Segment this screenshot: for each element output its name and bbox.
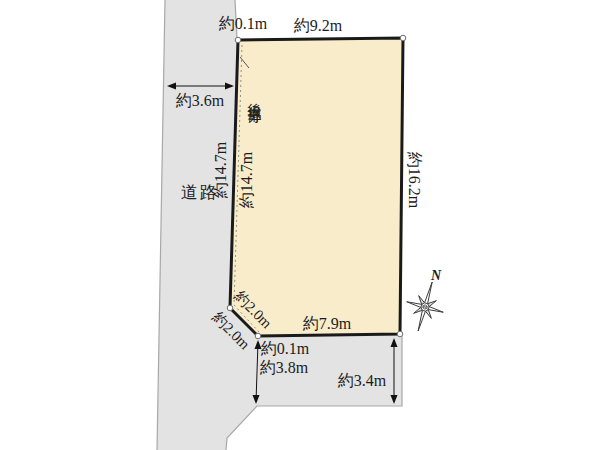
dim-label-top-edge: 約9.2m: [294, 18, 342, 34]
dim-label-right-edge: 約16.2m: [406, 152, 422, 208]
site-plan-diagram: 約0.1m 約9.2m 約3.6m 道路 約14.7m 約14.7m 後退部分 …: [0, 0, 600, 450]
north-label: N: [431, 269, 441, 283]
corner-marker: [227, 305, 233, 311]
corner-marker: [235, 37, 241, 43]
dim-label-bottom-road-width-left: 約3.8m: [260, 360, 308, 376]
dim-label-road-width: 約3.6m: [176, 93, 224, 109]
dim-label-bottom-edge: 約7.9m: [303, 316, 351, 332]
site-plan-canvas: [0, 0, 600, 450]
dim-label-top-offset: 約0.1m: [219, 16, 267, 32]
dim-label-bottom-offset: 約0.1m: [261, 341, 309, 357]
lot-parcel: [230, 38, 403, 336]
dim-label-left-edge-lot-side: 約14.7m: [239, 152, 255, 208]
compass-rose-icon: [400, 277, 451, 336]
corner-marker: [397, 331, 403, 337]
corner-marker: [255, 333, 261, 339]
dim-label-bottom-road-width-right: 約3.4m: [338, 373, 386, 389]
setback-label: 後退部分: [247, 92, 261, 100]
dim-label-left-edge-road-side: 約14.7m: [213, 142, 229, 198]
corner-marker: [400, 35, 406, 41]
